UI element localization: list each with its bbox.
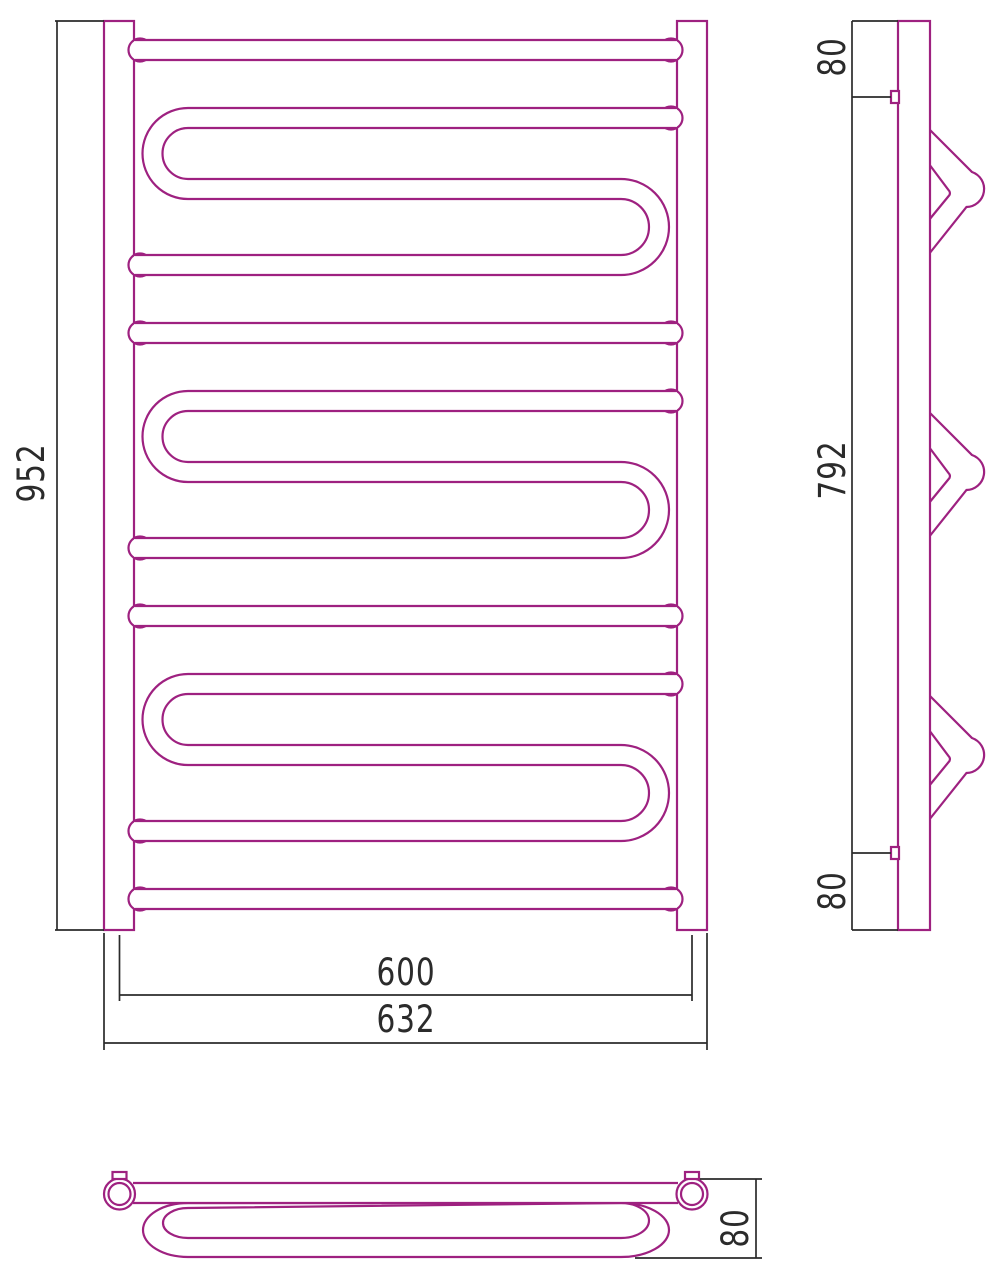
side-collector-tube [898, 21, 930, 930]
depth-dimension-label: 80 [714, 1208, 757, 1247]
wall-fitting-top [891, 91, 899, 103]
v-bracket-1 [929, 129, 984, 254]
left-collector [104, 21, 134, 930]
rung-2 [129, 322, 683, 345]
right-collector [677, 21, 707, 930]
side-view [891, 21, 984, 930]
rung-4 [129, 888, 683, 911]
height-dimension-label: 952 [10, 444, 53, 503]
technical-drawing-canvas: 952 600 632 80 792 80 80 [0, 0, 996, 1280]
mount-span-dimension-label: 792 [811, 441, 854, 500]
wall-fitting-bottom [891, 847, 899, 859]
drawing-page: 952 600 632 80 792 80 80 [0, 0, 996, 1280]
bottom-offset-dimension-label: 80 [811, 871, 854, 910]
coil-2 [129, 390, 683, 560]
front-view [104, 21, 707, 930]
side-view-dimensions [852, 21, 898, 930]
v-bracket-3 [929, 695, 984, 820]
top-offset-dimension-label: 80 [811, 37, 854, 76]
coil-1 [129, 107, 683, 277]
coil-3 [129, 673, 683, 843]
collector-end-left-inner [109, 1183, 131, 1205]
overall-width-dimension-label: 632 [377, 998, 436, 1041]
collector-end-right-inner [681, 1183, 703, 1205]
rung-1 [129, 39, 683, 62]
height-dimension-ticks [55, 21, 104, 930]
top-fitting-left [113, 1172, 127, 1179]
rail-width-dimension-label: 600 [377, 951, 436, 994]
top-view [104, 1172, 708, 1257]
side-dimension-ticks [852, 21, 898, 930]
top-fitting-right [685, 1172, 699, 1179]
rung-3 [129, 605, 683, 628]
coil-loop-inner [163, 1203, 649, 1238]
tube-row-body [133, 1183, 678, 1203]
v-bracket-2 [929, 412, 984, 537]
